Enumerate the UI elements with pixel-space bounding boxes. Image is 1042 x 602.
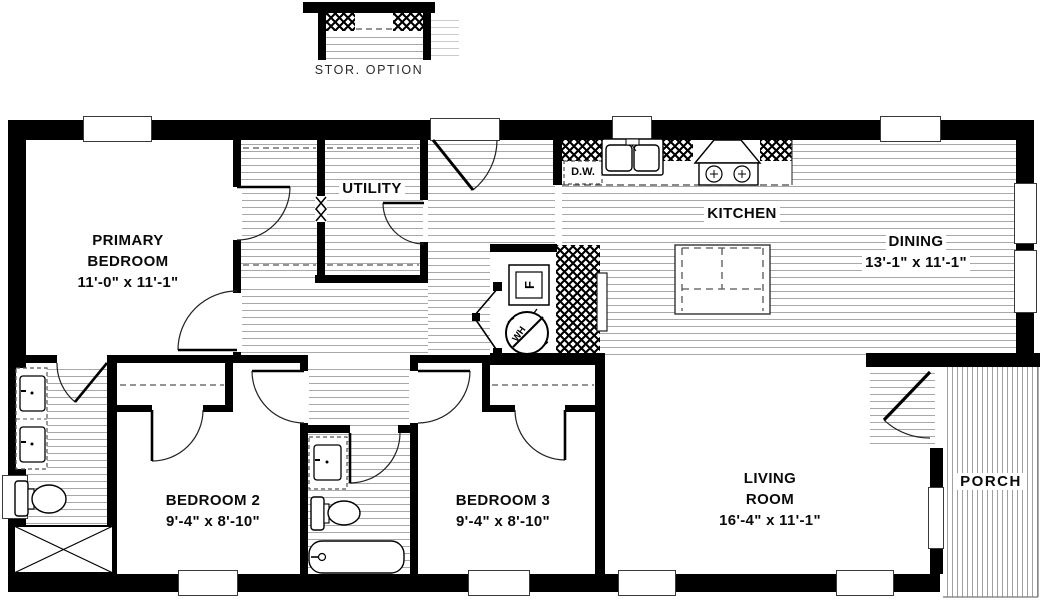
bedroom2-door bbox=[252, 371, 304, 423]
wall-living-bedroom3 bbox=[595, 357, 605, 574]
floor-hall-spur bbox=[308, 363, 410, 428]
counter-hatch-left bbox=[562, 140, 602, 161]
window-living-1 bbox=[618, 570, 676, 596]
wall-bed2-closet-left bbox=[117, 405, 152, 412]
kitchen-label: KITCHEN bbox=[688, 205, 796, 222]
bedroom3-closet-door bbox=[515, 410, 565, 460]
window-bath1-left bbox=[2, 475, 28, 519]
counter-hatch-right bbox=[760, 140, 792, 161]
wall-utility-left bbox=[317, 138, 325, 283]
storage-option-top-wall bbox=[303, 2, 435, 13]
floor-utility bbox=[325, 138, 423, 275]
floor-foyer bbox=[428, 138, 555, 245]
floor-corridor bbox=[241, 283, 428, 357]
wall-exterior-left bbox=[8, 120, 26, 592]
wall-south-right bbox=[410, 355, 490, 363]
utility-label: UTILITY bbox=[322, 180, 422, 197]
wall-mech-closet-bottom bbox=[490, 353, 605, 365]
porch-label: PORCH bbox=[950, 473, 1032, 490]
wall-utility-right-lower bbox=[420, 242, 428, 283]
storage-option-floor bbox=[326, 31, 423, 60]
window-living-2 bbox=[836, 570, 894, 596]
primary-bedroom-label: PRIMARY BEDROOM 11'-0" x 11'-1" bbox=[47, 230, 209, 293]
storage-option-label: STOR. OPTION bbox=[303, 63, 435, 77]
storage-option-right-wall bbox=[423, 13, 431, 60]
storage-option-left-wall bbox=[318, 13, 326, 60]
bedroom3-label: BEDROOM 3 9'-4" x 8'-10" bbox=[422, 490, 584, 532]
wall-bed3-closet-left bbox=[482, 405, 515, 412]
wall-foyer-kitchen bbox=[553, 138, 562, 185]
dining-label: DINING 13'-1" x 11'-1" bbox=[832, 231, 1000, 273]
storage-option-hatch-right bbox=[393, 13, 423, 31]
storage-option-hatch-left bbox=[326, 13, 355, 31]
dishwasher-label: D.W. bbox=[564, 163, 602, 182]
wall-bed3-closet-stub bbox=[482, 363, 490, 410]
storage-option-siding bbox=[431, 14, 459, 58]
pantry-cabinet-hatch bbox=[556, 245, 600, 358]
wall-dining-porch bbox=[866, 353, 1040, 367]
wall-bed2-closet-right bbox=[203, 405, 233, 412]
wall-primary-closet bbox=[233, 138, 241, 355]
bedroom2-closet-door bbox=[152, 410, 203, 461]
floor-foyer-lower bbox=[428, 245, 490, 357]
floor-entry-landing bbox=[870, 367, 935, 448]
primary-bedroom-door bbox=[178, 291, 237, 350]
floor-plan: F WH bbox=[0, 0, 1042, 602]
window-dining-right-1 bbox=[1014, 183, 1037, 244]
wall-bed3-closet-right bbox=[565, 405, 597, 412]
bedroom3-door bbox=[418, 371, 470, 423]
wall-south-left bbox=[26, 355, 57, 363]
counter-hatch-mid bbox=[663, 140, 693, 161]
window-dining-right-2 bbox=[1014, 250, 1037, 313]
window-bedroom3 bbox=[468, 570, 530, 596]
storage-option-shelf bbox=[355, 13, 393, 31]
wall-hall-bedroom3 bbox=[410, 355, 418, 574]
bedroom2-label: BEDROOM 2 9'-4" x 8'-10" bbox=[132, 490, 294, 532]
front-door-opening bbox=[430, 118, 500, 141]
window-dining-top bbox=[880, 116, 941, 142]
window-bedroom2 bbox=[178, 570, 238, 596]
window-primary-bedroom bbox=[83, 116, 152, 142]
wall-utility-bottom bbox=[315, 275, 423, 283]
wall-mech-closet-top bbox=[490, 244, 557, 252]
floor-primary-bath bbox=[26, 363, 107, 574]
wall-south-mid bbox=[107, 355, 300, 363]
living-room-label: LIVING ROOM 16'-4" x 11'-1" bbox=[686, 468, 854, 531]
wall-bath1-bedroom2 bbox=[107, 355, 117, 574]
wall-hallbath-top-left bbox=[308, 425, 350, 433]
wall-hallbath-top-right bbox=[398, 425, 418, 433]
window-living-porch bbox=[928, 487, 944, 549]
mech-closet-interior bbox=[490, 252, 557, 355]
floor-hall-bath bbox=[308, 428, 410, 574]
wall-bedroom2-hall bbox=[300, 355, 308, 574]
window-kitchen-sink bbox=[612, 116, 652, 141]
